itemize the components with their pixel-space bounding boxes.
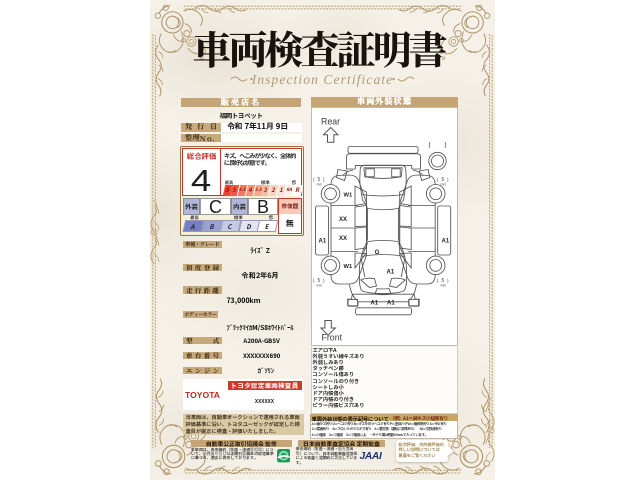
svg-text:W1: W1 bbox=[344, 264, 353, 270]
svg-text:XX: XX bbox=[339, 217, 347, 223]
svg-text:mm: mm bbox=[317, 284, 323, 288]
svg-text:): ) bbox=[323, 177, 325, 182]
svg-text:A1: A1 bbox=[319, 239, 327, 245]
svg-text:(: ( bbox=[313, 177, 315, 182]
svg-text:(: ( bbox=[313, 278, 315, 283]
svg-text:): ) bbox=[323, 278, 325, 283]
svg-text:XX: XX bbox=[339, 236, 347, 242]
svg-text:): ) bbox=[447, 177, 449, 182]
svg-text:mm: mm bbox=[317, 183, 323, 187]
svg-text:(: ( bbox=[437, 278, 439, 283]
svg-text:mm: mm bbox=[441, 183, 447, 187]
svg-text:A1: A1 bbox=[442, 239, 450, 245]
svg-text:A1: A1 bbox=[371, 301, 379, 307]
svg-text:A1: A1 bbox=[387, 270, 395, 276]
svg-text:(: ( bbox=[437, 177, 439, 182]
svg-text:W1: W1 bbox=[344, 192, 353, 198]
svg-text:A1: A1 bbox=[387, 301, 395, 307]
svg-text:G: G bbox=[375, 250, 380, 256]
svg-text:): ) bbox=[447, 278, 449, 283]
svg-text:mm: mm bbox=[441, 284, 447, 288]
svg-text:Rear: Rear bbox=[321, 117, 340, 127]
svg-text:Front: Front bbox=[322, 333, 343, 343]
